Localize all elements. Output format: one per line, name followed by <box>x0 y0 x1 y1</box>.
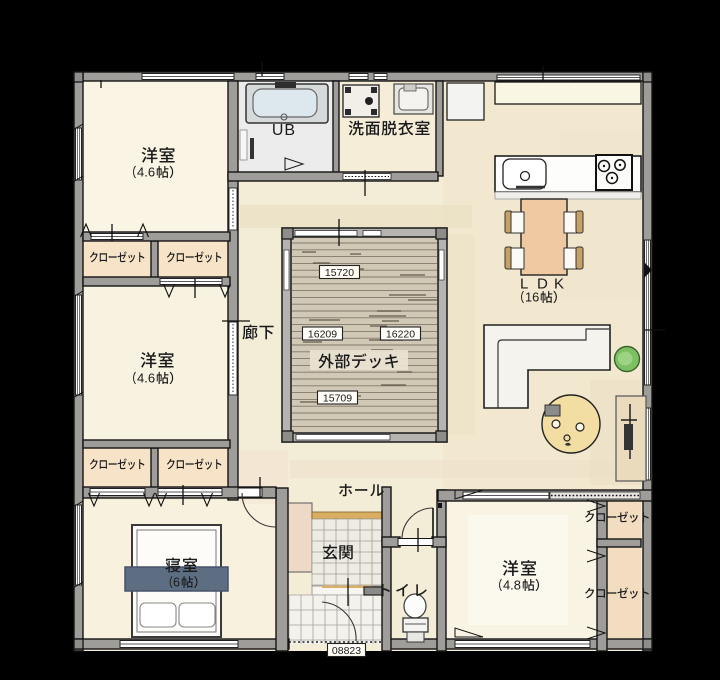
svg-text:15709: 15709 <box>323 392 352 404</box>
svg-text:K: K <box>554 275 564 292</box>
svg-text:16: 16 <box>525 290 539 305</box>
svg-text:UB: UB <box>272 122 296 139</box>
svg-text:16220: 16220 <box>386 328 415 340</box>
svg-text:6: 6 <box>173 576 180 590</box>
svg-text:15720: 15720 <box>325 267 354 279</box>
svg-text:4.6: 4.6 <box>137 371 155 386</box>
svg-text:4.8: 4.8 <box>503 578 521 593</box>
svg-text:4.6: 4.6 <box>137 165 155 180</box>
svg-text:16209: 16209 <box>308 328 337 340</box>
svg-text:08823: 08823 <box>332 645 361 657</box>
